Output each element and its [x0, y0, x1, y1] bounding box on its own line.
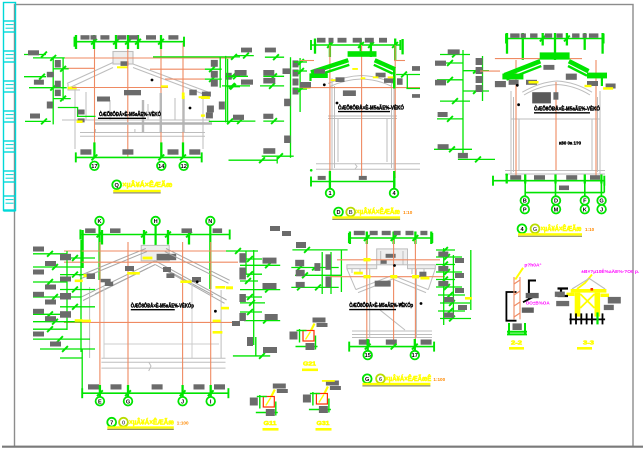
svg-text:K: K [583, 207, 587, 213]
svg-text:J: J [600, 207, 603, 213]
svg-text:P: P [523, 207, 527, 213]
svg-text:ÒÆÕ8ÔÐÅ×È-M5aÄE%-VÈKÓ: ÒÆÕ8ÔÐÅ×È-M5aÄE%-VÈKÓ [99, 110, 161, 118]
svg-text:D: D [554, 199, 558, 205]
svg-text:ÒÆÕ8ÔÐÅ×È-M5aÄE%-VÈKÓ: ÒÆÕ8ÔÐÅ×È-M5aÄE%-VÈKÓ [534, 105, 600, 113]
svg-text:1:100: 1:100 [177, 420, 189, 425]
svg-text:Q: Q [115, 183, 120, 189]
svg-text:K: K [97, 219, 101, 225]
svg-text:G21: G21 [303, 362, 316, 368]
svg-text:0: 0 [122, 420, 125, 426]
svg-text:ÒÆÕ8ÔÐÅ×È-M5aÄE%-VÈKÓ: ÒÆÕ8ÔÐÅ×È-M5aÄE%-VÈKÓ [338, 103, 404, 111]
svg-text:G: G [533, 227, 537, 233]
svg-text:×µÂ¥Á×ÊÆÃæ: ×µÂ¥Á×ÊÆÃæ [356, 207, 400, 216]
svg-text:E: E [98, 399, 102, 405]
svg-text:OO±B%OA: OO±B%OA [526, 300, 551, 306]
svg-text:×µÂ¥Á×ÊÆÃæÊ: ×µÂ¥Á×ÊÆÃæÊ [385, 374, 431, 383]
svg-text:1: 1 [328, 191, 331, 197]
svg-text:ÒÆÕ8ÔÐÅ×È-M5aÄE%-VÈKÓp: ÒÆÕ8ÔÐÅ×È-M5aÄE%-VÈKÓp [349, 301, 413, 309]
svg-text:×µÂ¥Á×ÊÆÃæ: ×µÂ¥Á×ÊÆÃæ [129, 417, 174, 426]
svg-text:D: D [336, 210, 340, 216]
svg-text:G: G [599, 199, 603, 205]
svg-text:B: B [523, 199, 527, 205]
svg-text:7: 7 [110, 420, 113, 426]
svg-text:×µÂ¥Á×ÊÆÃæ: ×µÂ¥Á×ÊÆÃæ [122, 180, 172, 189]
svg-text:G31: G31 [317, 421, 330, 427]
svg-text:F: F [583, 199, 587, 205]
svg-text:3-3: 3-3 [583, 341, 594, 347]
svg-text:17: 17 [412, 353, 418, 359]
svg-text:1:10: 1:10 [403, 210, 413, 215]
svg-text:H: H [154, 219, 158, 225]
svg-text:J: J [181, 399, 184, 405]
svg-text:G: G [126, 399, 130, 405]
svg-text:G11: G11 [264, 421, 277, 427]
svg-text:15: 15 [365, 353, 371, 359]
svg-text:N: N [208, 219, 212, 225]
svg-text:×µÂ¥Á×ÊÆÃæ: ×µÂ¥Á×ÊÆÃæ [541, 224, 582, 233]
svg-text:1:10: 1:10 [585, 227, 595, 232]
svg-text:1:100: 1:100 [433, 377, 445, 382]
svg-text:ÒÆÕ8ÔÐÅ×È-M5aÄE%-VÈKÓp: ÒÆÕ8ÔÐÅ×È-M5aÄE%-VÈKÓp [131, 301, 194, 309]
svg-text:M: M [554, 207, 559, 213]
svg-text:14: 14 [158, 164, 165, 170]
svg-text:ĸ80 0a 1?0: ĸ80 0a 1?0 [559, 141, 581, 146]
svg-text:17: 17 [91, 164, 97, 170]
svg-text:12: 12 [181, 164, 187, 170]
svg-text:B: B [349, 210, 353, 216]
svg-text:2-2: 2-2 [511, 341, 522, 347]
svg-text:p?h0A°: p?h0A° [524, 263, 541, 269]
svg-text:6: 6 [379, 377, 382, 383]
svg-text:G: G [365, 377, 369, 383]
